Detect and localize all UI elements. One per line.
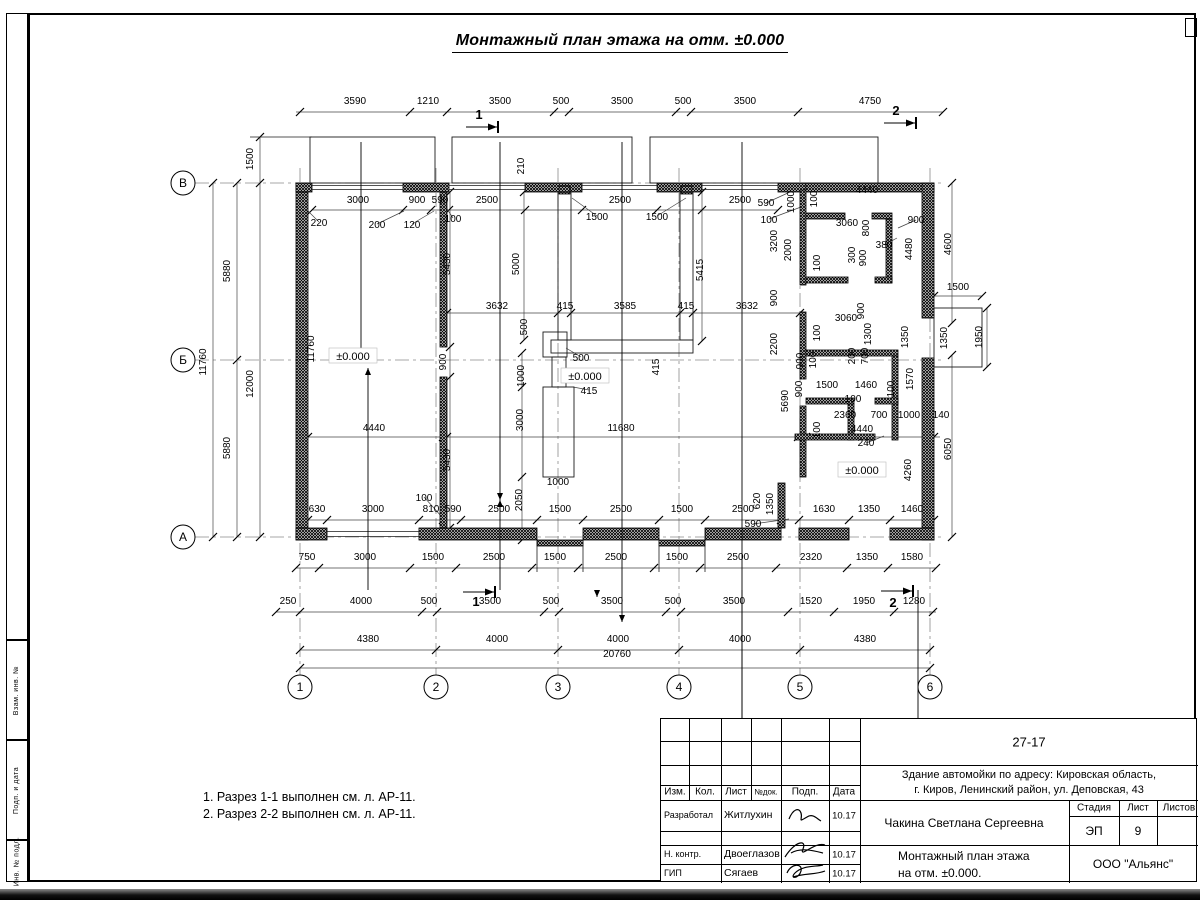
dimension-label: 500 <box>519 318 530 335</box>
grid-bubble-label: 6 <box>927 680 934 694</box>
dimension-label: 4750 <box>859 96 882 107</box>
dimension-label: 1500 <box>544 552 567 563</box>
dimension-label: 3500 <box>479 596 502 607</box>
stamp-date: 10.17 <box>832 811 856 822</box>
stamp-role: Н. контр. <box>664 849 701 859</box>
dimension-label: 500 <box>665 596 682 607</box>
wall <box>778 483 785 528</box>
dimension-label: 100 <box>812 421 823 438</box>
dimension-label: 900 <box>794 380 805 397</box>
wall <box>800 190 806 285</box>
dimension-label: 4440 <box>856 185 879 196</box>
dimension-label: 20760 <box>603 649 631 660</box>
stamp-date: 10.17 <box>832 869 856 880</box>
dimension-label: 3500 <box>611 96 634 107</box>
dimension-label: 240 <box>858 438 875 449</box>
stage-value: ЭП <box>1085 824 1102 838</box>
wall <box>403 183 449 192</box>
stamp-col-data: Дата <box>833 787 855 798</box>
dimension-label: 4600 <box>943 232 954 255</box>
wall <box>681 186 692 194</box>
dimension-label: 500 <box>543 596 560 607</box>
dimension-label: 3500 <box>723 596 746 607</box>
dimension-label: 120 <box>404 220 421 231</box>
stamp-name: Двоеглазов <box>724 848 780 860</box>
dimension-label: 900 <box>795 352 806 369</box>
dimension-label: 1500 <box>549 504 572 515</box>
flow-arrow-head <box>497 493 503 500</box>
stamp-col-izm: Изм. <box>664 787 685 798</box>
dimension-label: 700 <box>860 347 871 364</box>
organization: ООО "Альянс" <box>1093 857 1173 871</box>
dimension-label: 900 <box>438 353 449 370</box>
dimension-label: 3585 <box>614 301 637 312</box>
dimension-label: 100 <box>809 190 820 207</box>
floor-plan: 1122ВБА123456±0.000±0.000±0.000359012103… <box>0 0 1200 765</box>
dimension-label: 4000 <box>607 634 630 645</box>
wall <box>537 540 583 546</box>
dimension-label: 620 <box>752 492 763 509</box>
dimension-label: 200 <box>369 220 386 231</box>
dimension-label: 4000 <box>729 634 752 645</box>
dimension-label: 3000 <box>515 408 526 431</box>
doc-title-line1: Монтажный план этажа <box>898 849 1030 863</box>
section-arrow-head <box>488 124 497 131</box>
dimension-label: 4380 <box>854 634 877 645</box>
dimension-label: 4480 <box>904 237 915 260</box>
outline-rect <box>558 192 571 340</box>
section-arrow-head <box>485 589 494 596</box>
grid-bubble-label: 3 <box>555 680 562 694</box>
grid-bubble-label: 5 <box>797 680 804 694</box>
dimension-label: 590 <box>758 198 775 209</box>
dimension-label: 415 <box>581 386 598 397</box>
dimension-label: 1630 <box>813 504 836 515</box>
wall <box>559 186 570 194</box>
dimension-label: 3060 <box>835 313 858 324</box>
wall <box>922 183 934 318</box>
project-address-line2: г. Киров, Ленинский район, ул. Деповская… <box>914 784 1144 796</box>
grid-bubble-label: А <box>179 530 187 544</box>
stamp-name: Житлухин <box>724 809 772 821</box>
section-label: 1 <box>475 107 482 122</box>
designer-name: Чакина Светлана Сергеевна <box>884 816 1043 830</box>
wall <box>583 528 659 540</box>
wall <box>886 219 892 283</box>
project-address-line1: Здание автомойки по адресу: Кировская об… <box>902 769 1156 781</box>
section-label: 2 <box>889 595 896 610</box>
stamp-name: Сягаев <box>724 867 758 879</box>
dimension-label: 380 <box>876 240 893 251</box>
dimension-label: 2500 <box>483 552 506 563</box>
doc-title-line2: на отм. ±0.000. <box>898 866 981 880</box>
dimension-label: 1500 <box>671 504 694 515</box>
dimension-label: 500 <box>553 96 570 107</box>
outline-rect <box>310 137 435 183</box>
dimension-label: 1520 <box>800 596 823 607</box>
dimension-label: 900 <box>856 302 867 319</box>
dimension-label: 2360 <box>834 410 857 421</box>
section-label: 2 <box>892 103 899 118</box>
dimension-label: 1500 <box>947 282 970 293</box>
grid-bubble-label: 2 <box>433 680 440 694</box>
dimension-label: 1500 <box>586 212 609 223</box>
side-strip-cell: Инв. № подл. <box>6 840 28 882</box>
dimension-label: 4440 <box>363 423 386 434</box>
wall <box>296 528 327 540</box>
dimension-label: 2320 <box>800 552 823 563</box>
dimension-label: 4260 <box>903 458 914 481</box>
dimension-label: 210 <box>516 157 527 174</box>
dimension-label: 800 <box>861 219 872 236</box>
dimension-label: 3590 <box>344 96 367 107</box>
dimension-label: 590 <box>445 504 462 515</box>
dimension-label: 2500 <box>609 195 632 206</box>
dimension-label: 5880 <box>222 259 233 282</box>
level-mark: ±0.000 <box>845 465 879 477</box>
wall <box>799 528 849 540</box>
dimension-label: 415 <box>678 301 695 312</box>
dimension-label: 3200 <box>769 229 780 252</box>
dimension-label: 1350 <box>939 326 950 349</box>
notes: 1. Разрез 1-1 выполнен см. л. АР-11. 2. … <box>203 789 416 823</box>
stamp-date: 10.17 <box>832 850 856 861</box>
dimension-label: 900 <box>858 249 869 266</box>
dimension-label: 250 <box>280 596 297 607</box>
dimension-label: 1350 <box>856 552 879 563</box>
dimension-label: 415 <box>557 301 574 312</box>
dimension-label: 3632 <box>486 301 509 312</box>
stamp-col-list: Лист <box>725 787 747 798</box>
dimension-label: 5430 <box>442 252 453 275</box>
dimension-label: 1300 <box>863 322 874 345</box>
dimension-label: 2500 <box>488 504 511 515</box>
level-mark: ±0.000 <box>336 351 370 363</box>
dimension-label: 4380 <box>357 634 380 645</box>
dimension-label: 500 <box>421 596 438 607</box>
dimension-label: 1500 <box>245 147 256 170</box>
dimension-label: 590 <box>745 519 762 530</box>
dimension-label: 2500 <box>476 195 499 206</box>
dimension-label: 700 <box>871 410 888 421</box>
dimension-label: 3500 <box>601 596 624 607</box>
dimension-label: 1000 <box>547 477 570 488</box>
dimension-label: 5690 <box>780 389 791 412</box>
dimension-label: 5415 <box>695 258 706 281</box>
dimension-label: 500 <box>675 96 692 107</box>
wall <box>657 183 702 192</box>
dimension-label: 1950 <box>974 325 985 348</box>
flow-arrow-head <box>619 615 625 622</box>
dimension-label: 900 <box>908 215 925 226</box>
dimension-label: 2500 <box>727 552 750 563</box>
outline-rect <box>452 137 632 183</box>
dimension-label: 750 <box>299 552 316 563</box>
dimension-label: 900 <box>769 289 780 306</box>
sheets-label: Листов <box>1163 803 1196 814</box>
dimension-label: 100 <box>808 351 819 368</box>
wall <box>419 528 537 540</box>
dimension-label: 11680 <box>607 423 635 434</box>
dimension-label: 3500 <box>734 96 757 107</box>
dimension-label: 11760 <box>198 348 209 376</box>
dimension-label: 11760 <box>306 335 317 363</box>
dimension-label: 100 <box>845 394 862 405</box>
wall <box>922 358 934 540</box>
dimension-label: 3000 <box>347 195 370 206</box>
wall <box>525 183 582 192</box>
wall <box>800 406 806 477</box>
dimension-label: 5880 <box>222 436 233 459</box>
outline-rect <box>680 192 693 340</box>
dimension-label: 2000 <box>783 238 794 261</box>
dimension-label: 1000 <box>898 410 921 421</box>
outline-rect <box>543 387 574 477</box>
stamp-col-kol: Кол. <box>695 787 715 798</box>
dimension-label: 3500 <box>489 96 512 107</box>
dimension-label: 100 <box>416 493 433 504</box>
dimension-label: 415 <box>651 358 662 375</box>
dimension-label: 100 <box>812 254 823 271</box>
dimension-label: 810 <box>423 504 440 515</box>
grid-bubble-label: В <box>179 176 187 190</box>
dimension-label: 2500 <box>729 195 752 206</box>
dimension-label: 3632 <box>736 301 759 312</box>
dimension-label: 140 <box>933 410 950 421</box>
dimension-label: 220 <box>311 218 328 229</box>
wall <box>875 398 898 404</box>
outline-rect <box>650 137 878 183</box>
dimension-label: 590 <box>432 195 449 206</box>
dimension-label: 2500 <box>610 504 633 515</box>
dimension-label: 1500 <box>816 380 839 391</box>
dimension-label: 1500 <box>666 552 689 563</box>
dimension-label: 300 <box>847 246 858 263</box>
dimension-label: 900 <box>409 195 426 206</box>
floor-plan-svg: 1122ВБА123456±0.000±0.000±0.000359012103… <box>0 0 1200 760</box>
dimension-label: 1580 <box>901 552 924 563</box>
sheet-label: Лист <box>1127 803 1149 814</box>
dimension-label: 5000 <box>511 252 522 275</box>
project-code: 27-17 <box>1012 735 1045 750</box>
stamp-col-ndok: №док. <box>754 788 777 797</box>
dimension-label: 2200 <box>769 332 780 355</box>
drawing-sheet: Взам. инв. № Подп. и дата Инв. № подл. М… <box>0 0 1200 900</box>
dimension-label: 1000 <box>516 364 527 387</box>
dimension-label: 1210 <box>417 96 440 107</box>
dimension-label: 1570 <box>905 367 916 390</box>
wall <box>806 277 848 283</box>
dimension-label: 100 <box>761 215 778 226</box>
side-strip-label: Инв. № подл. <box>14 836 21 886</box>
dimension-label: 3000 <box>362 504 385 515</box>
dimension-label: 6050 <box>943 437 954 460</box>
dimension-label: 2050 <box>514 488 525 511</box>
dimension-label: 1350 <box>900 325 911 348</box>
dimension-label: 5430 <box>442 448 453 471</box>
dimension-label: 1950 <box>853 596 876 607</box>
stamp-role: ГИП <box>664 868 682 878</box>
section-arrow-head <box>906 120 915 127</box>
dimension-label: 3000 <box>354 552 377 563</box>
wall <box>872 213 892 219</box>
grid-bubble-label: Б <box>179 353 187 367</box>
flow-arrow-head <box>594 590 600 597</box>
dimension-label: 12000 <box>245 370 256 398</box>
sheet-value: 9 <box>1135 824 1142 838</box>
section-arrow-head <box>903 588 912 595</box>
dimension-label: 200 <box>847 347 858 364</box>
side-strip-label: Подп. и дата <box>14 766 21 813</box>
wall <box>659 540 705 546</box>
dimension-label: 4000 <box>486 634 509 645</box>
signature <box>781 859 829 883</box>
dimension-label: 1280 <box>903 596 926 607</box>
wall <box>296 183 312 192</box>
dimension-label: 1000 <box>786 190 797 213</box>
dimension-label: 1350 <box>858 504 881 515</box>
dimension-label: 3060 <box>836 218 859 229</box>
stamp-col-podp: Подп. <box>792 787 819 798</box>
dimension-label: 4000 <box>350 596 373 607</box>
dimension-label: 1500 <box>422 552 445 563</box>
level-mark: ±0.000 <box>568 371 602 383</box>
dimension-label: 500 <box>573 353 590 364</box>
dimension-label: 100 <box>886 380 897 397</box>
dimension-label: 100 <box>812 324 823 341</box>
dimension-label: 4440 <box>851 424 874 435</box>
dimension-label: 2500 <box>605 552 628 563</box>
scan-edge-shadow <box>0 889 1200 900</box>
dimension-label: 1460 <box>901 504 924 515</box>
dimension-label: 1460 <box>855 380 878 391</box>
wall <box>875 277 892 283</box>
dimension-label: 1500 <box>646 212 669 223</box>
dimension-label: 100 <box>445 214 462 225</box>
dimension-label: 1350 <box>765 492 776 515</box>
wall <box>705 528 781 540</box>
signature <box>783 803 827 829</box>
stamp-role: Разработал <box>664 810 713 820</box>
dimension-label: 630 <box>309 504 326 515</box>
grid-bubble-label: 4 <box>676 680 683 694</box>
wall <box>890 528 934 540</box>
grid-bubble-label: 1 <box>297 680 304 694</box>
stage-label: Стадия <box>1077 803 1111 814</box>
title-block: Изм. Кол. Лист №док. Подп. Дата Разработ… <box>660 718 1197 882</box>
flow-arrow-head <box>365 368 371 375</box>
